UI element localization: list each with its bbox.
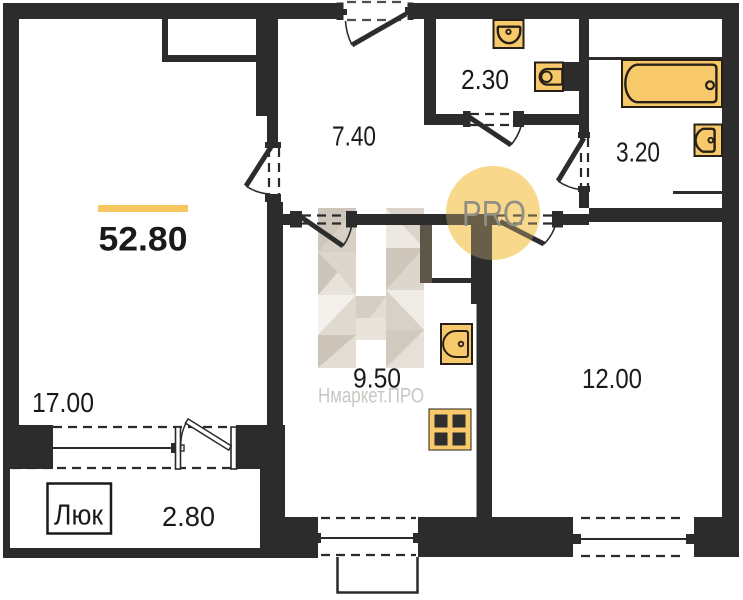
svg-text:52.80: 52.80 <box>99 221 188 259</box>
svg-text:2.30: 2.30 <box>461 64 509 95</box>
svg-text:3.20: 3.20 <box>616 137 660 168</box>
svg-text:17.00: 17.00 <box>32 387 94 418</box>
svg-text:Люк: Люк <box>54 500 103 532</box>
svg-text:12.00: 12.00 <box>582 363 642 394</box>
svg-text:7.40: 7.40 <box>332 121 376 152</box>
svg-text:9.50: 9.50 <box>353 363 401 394</box>
svg-text:PRO: PRO <box>462 193 526 234</box>
svg-text:2.80: 2.80 <box>162 501 215 532</box>
